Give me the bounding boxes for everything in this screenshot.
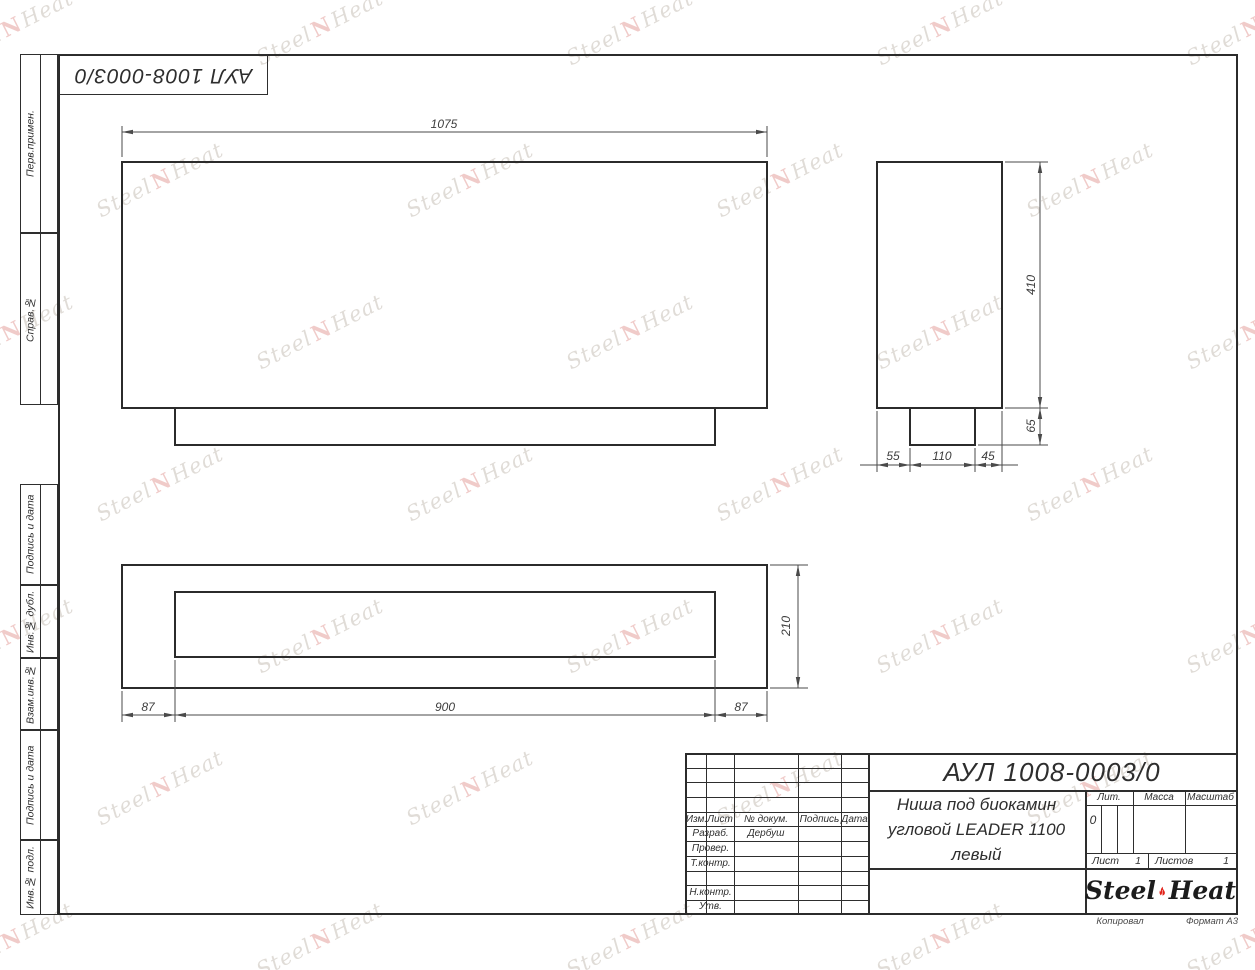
tb-row-tkontr: Т.контр. xyxy=(687,856,734,871)
tb-row-utv: Утв. xyxy=(687,900,734,913)
dim-plan-center: 900 xyxy=(435,700,455,714)
dim-plan-left: 87 xyxy=(141,700,154,714)
tb-col-izm: Изм. xyxy=(687,812,706,826)
tb-col-docnum: № докум. xyxy=(734,812,798,826)
tb-sheet-value: 1 xyxy=(1135,855,1141,867)
logo-text-heat: Heat xyxy=(1169,876,1236,905)
margin-label: Подпись и дата xyxy=(21,485,40,584)
tb-row-nkontr: Н.контр. xyxy=(687,885,734,900)
tb-part-name: Ниша под биокамин угловой LEADER 1100 ле… xyxy=(868,790,1085,868)
flame-icon xyxy=(1159,876,1166,906)
margin-label: Инв.№ дубл. xyxy=(21,586,40,657)
format-label: Формат А3 xyxy=(1177,916,1247,927)
tb-sheets-label: Листов xyxy=(1155,855,1193,867)
margin-box-sprav-no: Справ.№ xyxy=(20,233,58,405)
company-logo: Steel Heat xyxy=(1085,868,1236,913)
tb-col-list: Лист xyxy=(706,812,734,826)
dim-plinth-height: 65 xyxy=(1024,419,1038,432)
dim-front-width: 1075 xyxy=(431,117,458,131)
dim-plan-depth: 210 xyxy=(779,616,793,636)
dim-depth-front: 55 xyxy=(886,449,899,463)
tb-row-prover: Провер. xyxy=(687,841,734,856)
margin-label: Подпись и дата xyxy=(21,731,40,839)
margin-label: Взам.инв.№ xyxy=(21,659,40,729)
tb-lit-value: 0 xyxy=(1085,807,1101,833)
margin-box-podpis-data: Подпись и дата xyxy=(20,484,58,585)
margin-box-vzam-inv: Взам.инв.№ xyxy=(20,658,58,730)
tb-row-razrab: Разраб. xyxy=(687,826,734,841)
tb-sheet-label: Лист xyxy=(1092,855,1119,867)
margin-box-inv-dubl: Инв.№ дубл. xyxy=(20,585,58,658)
dim-height: 410 xyxy=(1024,275,1038,295)
tb-sheet-cell: Лист 1 xyxy=(1085,853,1148,868)
tb-part-name-line3: левый xyxy=(952,842,1002,867)
copied-label: Копировал xyxy=(1080,916,1160,927)
tb-lit-label: Лит. xyxy=(1085,790,1133,805)
tb-col-date: Дата xyxy=(841,812,868,826)
dim-depth-mid: 110 xyxy=(932,449,951,463)
tb-col-sign: Подпись xyxy=(798,812,841,826)
top-stamp-code: АУЛ 1008-0003/0 xyxy=(74,63,252,87)
logo-text-steel: Steel xyxy=(1085,876,1156,905)
dim-depth-back: 45 xyxy=(981,449,994,463)
margin-label: Инв.№ подл. xyxy=(21,841,40,914)
margin-label: Перв.примен. xyxy=(21,55,40,232)
dim-plan-right: 87 xyxy=(734,700,747,714)
tb-scale-label: Масштаб xyxy=(1185,790,1236,805)
tb-sheets-value: 1 xyxy=(1223,855,1229,867)
margin-box-inv-podl: Инв.№ подл. xyxy=(20,840,58,915)
tb-sheets-cell: Листов 1 xyxy=(1148,853,1236,868)
tb-part-name-line2: угловой LEADER 1100 xyxy=(888,817,1065,842)
tb-row-razrab-value: Дербуш xyxy=(734,826,798,841)
tb-doc-code: АУЛ 1008-0003/0 xyxy=(868,755,1236,790)
drawing-sheet: SteelNHeatSteelNHeatSteelNHeatSteelNHeat… xyxy=(0,0,1255,970)
top-stamp: АУЛ 1008-0003/0 xyxy=(58,54,268,95)
margin-box-perv-primen: Перв.примен. xyxy=(20,54,58,233)
margin-box-podpis-data2: Подпись и дата xyxy=(20,730,58,840)
tb-mass-label: Масса xyxy=(1133,790,1185,805)
title-block: Изм. Лист № докум. Подпись Дата Разраб. … xyxy=(685,753,1238,915)
margin-label: Справ.№ xyxy=(21,234,40,404)
tb-part-name-line1: Ниша под биокамин xyxy=(897,792,1056,817)
